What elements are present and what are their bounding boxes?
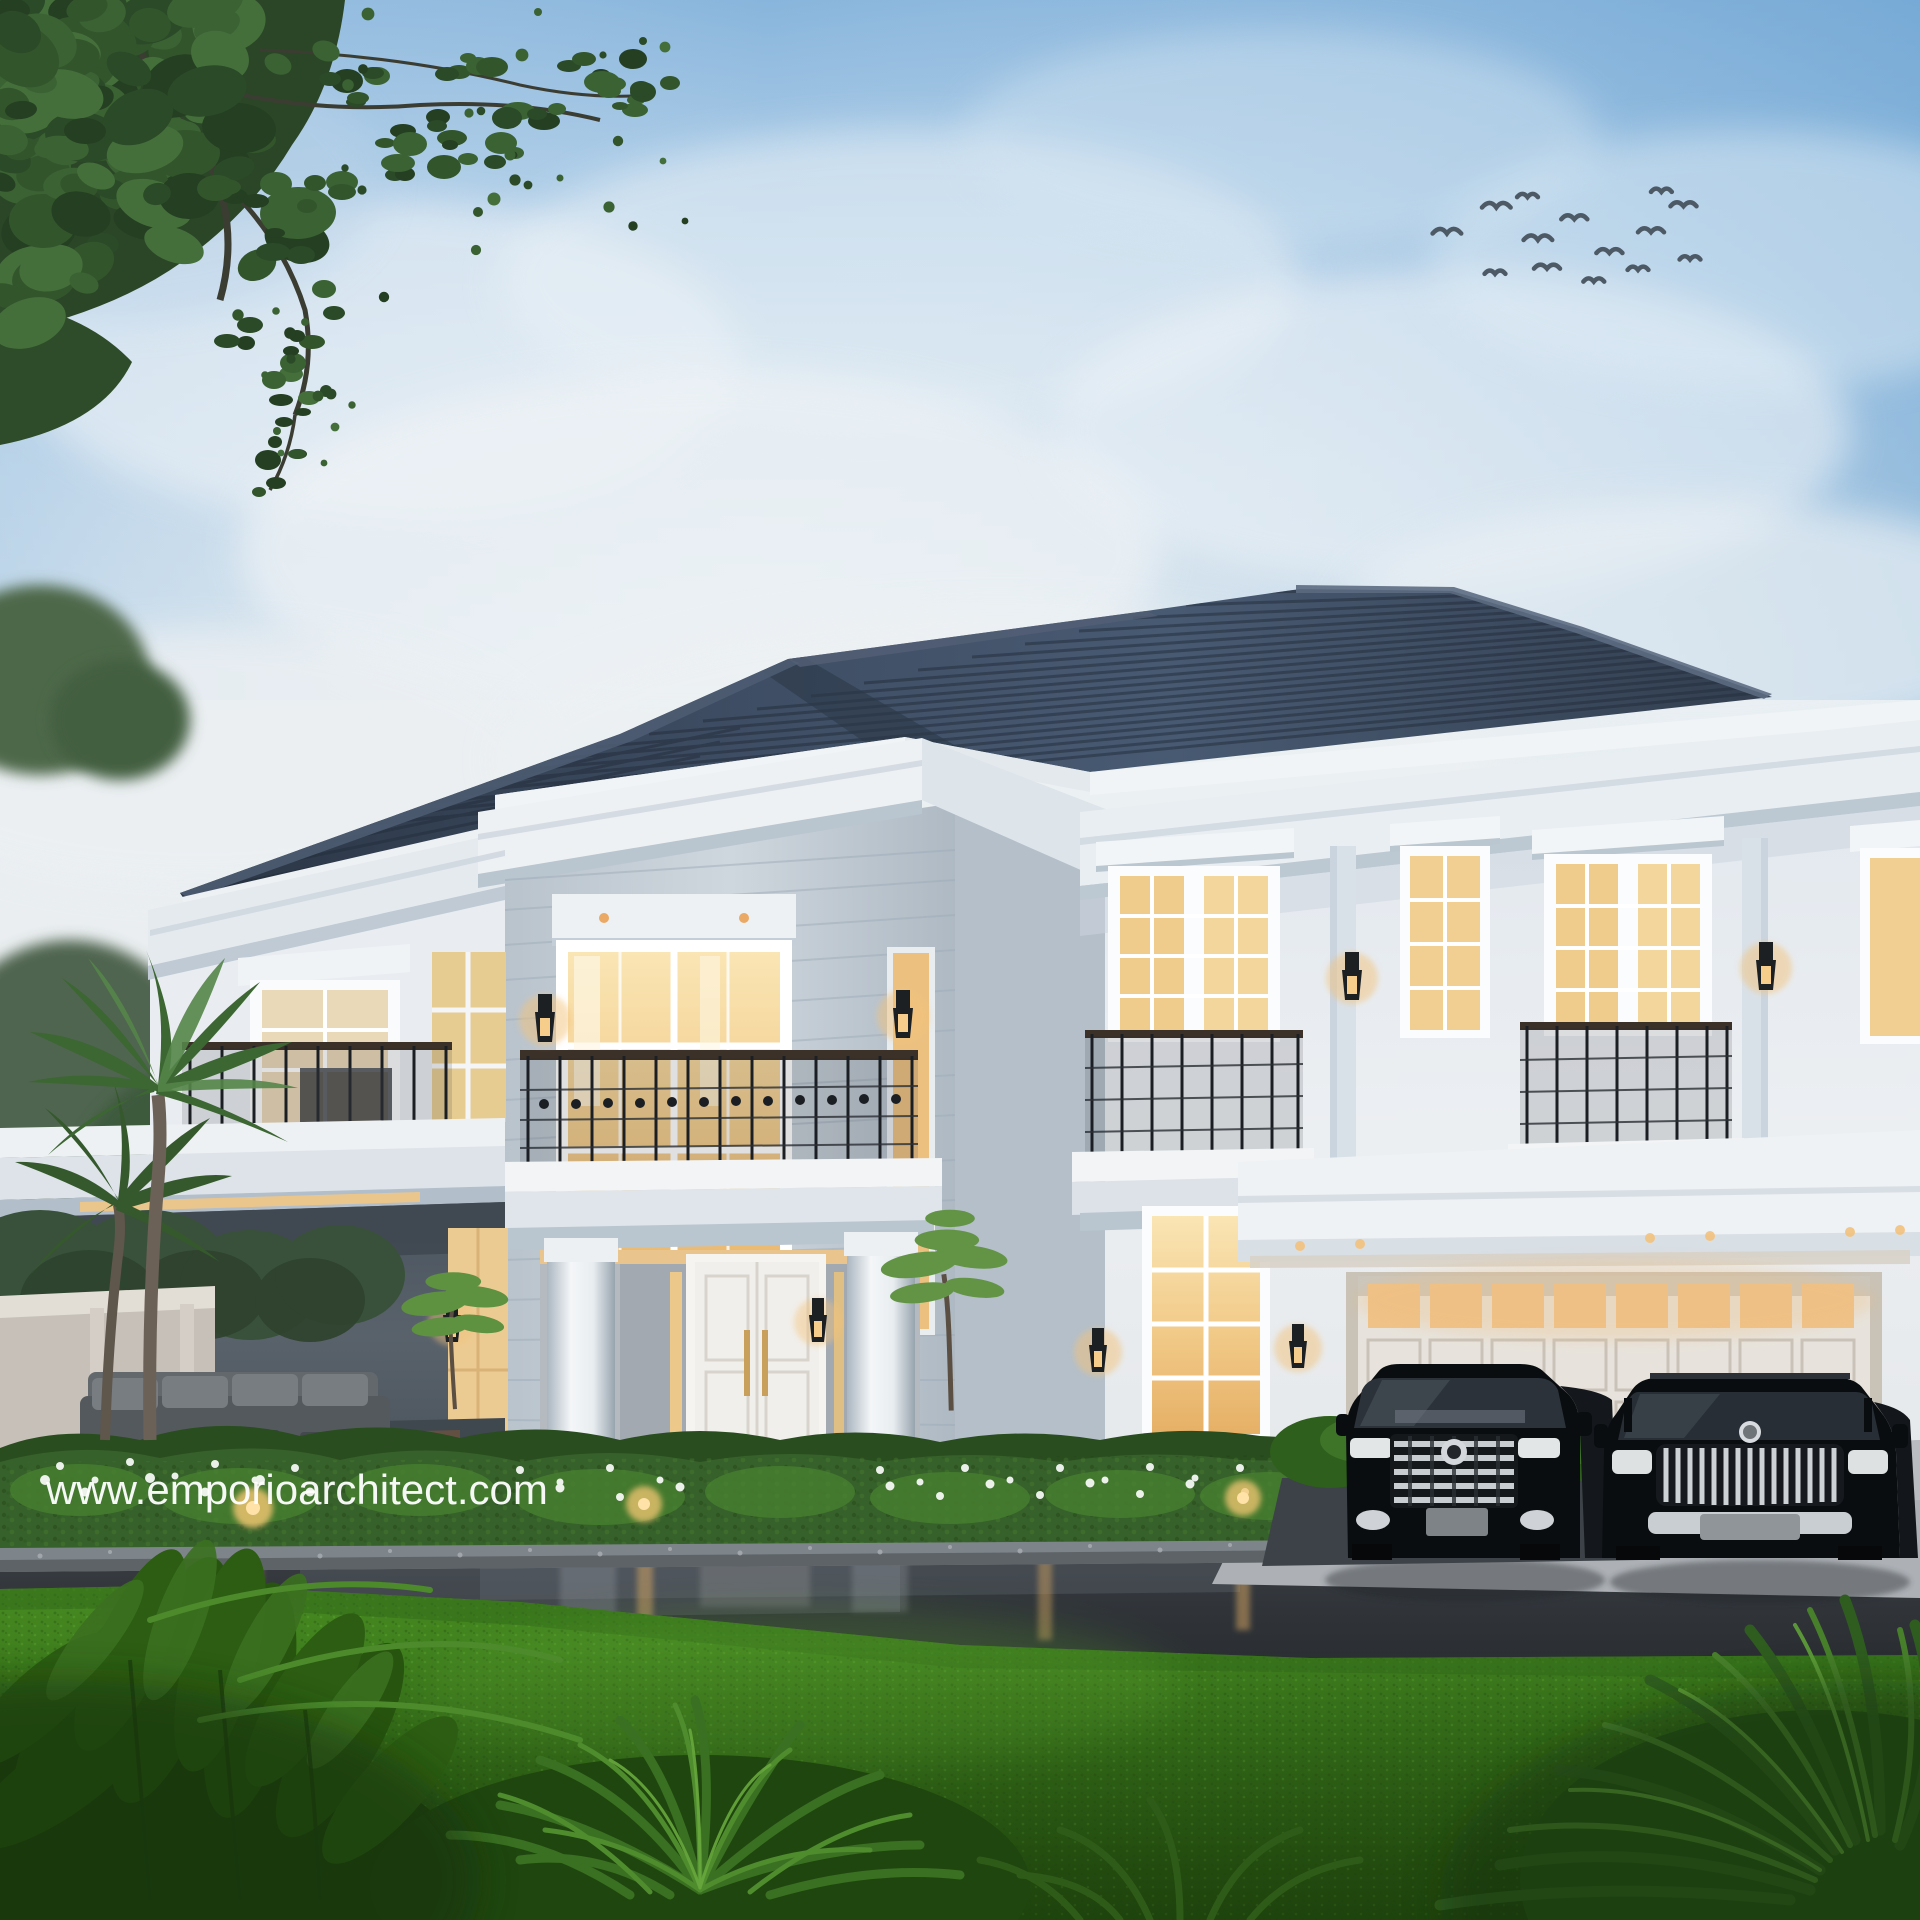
svg-text:www.emporioarchitect.com: www.emporioarchitect.com [45, 1466, 548, 1513]
